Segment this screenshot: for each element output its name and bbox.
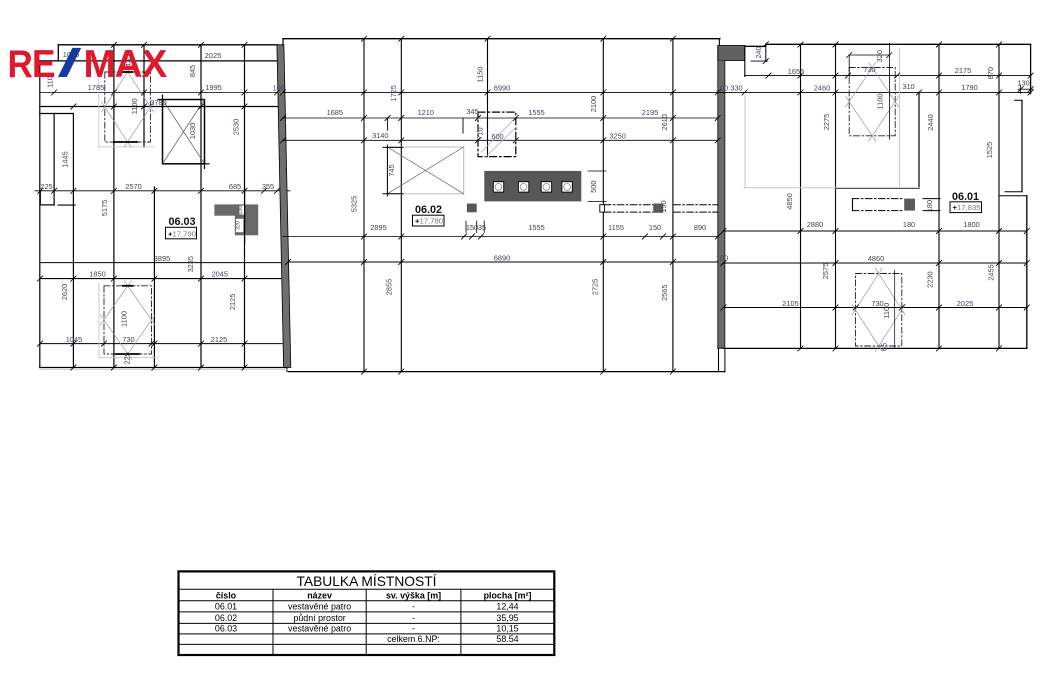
svg-text:1800: 1800: [963, 220, 979, 229]
svg-text:180: 180: [925, 200, 934, 212]
svg-text:2125: 2125: [228, 294, 237, 310]
svg-text:6990: 6990: [494, 84, 510, 93]
svg-text:100: 100: [716, 84, 728, 93]
svg-text:1210: 1210: [418, 108, 434, 117]
svg-text:1725: 1725: [389, 85, 398, 101]
svg-text:2195: 2195: [642, 108, 658, 117]
svg-text:355: 355: [262, 182, 274, 191]
svg-text:1525: 1525: [985, 142, 994, 158]
svg-text:2610: 2610: [660, 114, 669, 130]
svg-text:65: 65: [879, 343, 888, 351]
svg-text:+17,835: +17,835: [953, 203, 981, 212]
svg-text:240: 240: [754, 46, 763, 58]
svg-text:1030: 1030: [188, 123, 197, 139]
svg-text:870: 870: [986, 67, 995, 79]
svg-text:330: 330: [730, 84, 742, 93]
svg-text:4860: 4860: [868, 254, 884, 263]
svg-text:-: -: [412, 624, 415, 634]
svg-text:3140: 3140: [372, 131, 388, 140]
svg-text:4850: 4850: [785, 193, 794, 209]
svg-text:1150: 1150: [476, 67, 485, 83]
svg-text:1100: 1100: [876, 94, 885, 110]
svg-text:2530: 2530: [232, 119, 241, 135]
svg-text:130: 130: [238, 206, 244, 215]
svg-text:06.01: 06.01: [952, 191, 979, 203]
svg-text:2440: 2440: [926, 114, 935, 130]
svg-text:2620: 2620: [60, 284, 69, 300]
svg-text:název: název: [307, 590, 332, 600]
svg-text:2575: 2575: [821, 263, 830, 279]
svg-text:3895: 3895: [154, 254, 170, 263]
svg-text:1655: 1655: [788, 67, 804, 76]
svg-text:6890: 6890: [494, 254, 510, 263]
svg-text:600: 600: [491, 132, 503, 141]
svg-text:RE: RE: [8, 41, 55, 85]
svg-text:vestavěné patro: vestavěné patro: [288, 624, 351, 634]
svg-text:2880: 2880: [807, 220, 823, 229]
svg-text:2570: 2570: [125, 182, 141, 191]
svg-text:vestavěné patro: vestavěné patro: [288, 602, 351, 612]
svg-text:1445: 1445: [61, 151, 70, 167]
svg-text:1685: 1685: [327, 108, 343, 117]
svg-text:2025: 2025: [957, 299, 973, 308]
svg-text:58.54: 58.54: [496, 634, 518, 644]
svg-text:320: 320: [236, 221, 242, 230]
svg-text:35: 35: [478, 223, 486, 232]
svg-text:3250: 3250: [609, 131, 625, 140]
svg-text:3235: 3235: [186, 256, 195, 272]
svg-text:06.01: 06.01: [215, 602, 237, 612]
svg-text:+17,790: +17,790: [168, 229, 196, 238]
svg-text:plocha [m²]: plocha [m²]: [484, 590, 532, 600]
svg-text:345: 345: [466, 107, 478, 116]
svg-text:745: 745: [387, 164, 396, 176]
svg-text:1100: 1100: [882, 303, 891, 319]
svg-text:730: 730: [863, 65, 875, 74]
svg-text:2230: 2230: [926, 271, 935, 287]
svg-text:35,95: 35,95: [496, 613, 518, 623]
svg-text:12,44: 12,44: [496, 602, 518, 612]
svg-text:1045: 1045: [66, 335, 82, 344]
svg-text:2275: 2275: [822, 114, 831, 130]
svg-text:2455: 2455: [986, 264, 995, 280]
svg-text:130: 130: [1017, 79, 1029, 88]
svg-text:2175: 2175: [955, 66, 971, 75]
svg-text:5175: 5175: [100, 200, 109, 216]
svg-text:310: 310: [902, 82, 914, 91]
svg-text:2460: 2460: [814, 84, 830, 93]
svg-text:1995: 1995: [205, 83, 221, 92]
svg-text:2895: 2895: [370, 223, 386, 232]
svg-text:-: -: [412, 602, 415, 612]
svg-text:225: 225: [40, 182, 52, 191]
svg-text:06.03: 06.03: [215, 624, 237, 634]
svg-text:-: -: [412, 613, 415, 623]
svg-text:730: 730: [122, 335, 134, 344]
svg-text:2045: 2045: [212, 269, 228, 278]
svg-text:+17,780: +17,780: [415, 217, 443, 226]
svg-text:845: 845: [188, 65, 197, 77]
svg-text:1555: 1555: [528, 223, 544, 232]
svg-text:2125: 2125: [211, 335, 227, 344]
svg-text:1100: 1100: [130, 98, 139, 114]
svg-text:100: 100: [273, 84, 285, 93]
svg-text:celkem 6.NP:: celkem 6.NP:: [387, 634, 440, 644]
svg-text:890: 890: [694, 223, 706, 232]
svg-text:06.03: 06.03: [168, 216, 195, 228]
svg-text:150: 150: [659, 200, 668, 212]
svg-text:500: 500: [589, 181, 598, 193]
svg-text:1790: 1790: [961, 83, 977, 92]
svg-text:180: 180: [903, 220, 915, 229]
svg-text:číslo: číslo: [216, 590, 237, 600]
svg-text:2025: 2025: [205, 51, 221, 60]
svg-text:150: 150: [466, 223, 478, 232]
svg-text:2565: 2565: [660, 284, 669, 300]
svg-text:1555: 1555: [528, 108, 544, 117]
svg-text:1850: 1850: [89, 269, 105, 278]
svg-text:320: 320: [875, 50, 884, 62]
svg-text:06.02: 06.02: [215, 613, 237, 623]
svg-text:150: 150: [649, 223, 661, 232]
svg-text:MAX: MAX: [84, 43, 168, 86]
svg-text:1155: 1155: [608, 223, 624, 232]
svg-text:sv. výška [m]: sv. výška [m]: [386, 590, 441, 600]
svg-text:100: 100: [716, 254, 728, 263]
svg-text:půdní prostor: půdní prostor: [293, 613, 345, 623]
svg-text:TABULKA MÍSTNOSTÍ: TABULKA MÍSTNOSTÍ: [296, 573, 436, 589]
svg-text:2100: 2100: [589, 96, 598, 112]
svg-text:5325: 5325: [349, 196, 358, 212]
svg-text:06.02: 06.02: [415, 204, 442, 216]
svg-text:2105: 2105: [782, 299, 798, 308]
svg-text:2725: 2725: [590, 279, 599, 295]
svg-text:225: 225: [122, 352, 131, 364]
svg-text:710: 710: [476, 127, 485, 139]
svg-text:685: 685: [229, 182, 241, 191]
svg-text:3780: 3780: [150, 98, 166, 107]
svg-text:2855: 2855: [385, 279, 394, 295]
svg-text:1100: 1100: [120, 311, 129, 327]
svg-text:10,15: 10,15: [496, 624, 518, 634]
